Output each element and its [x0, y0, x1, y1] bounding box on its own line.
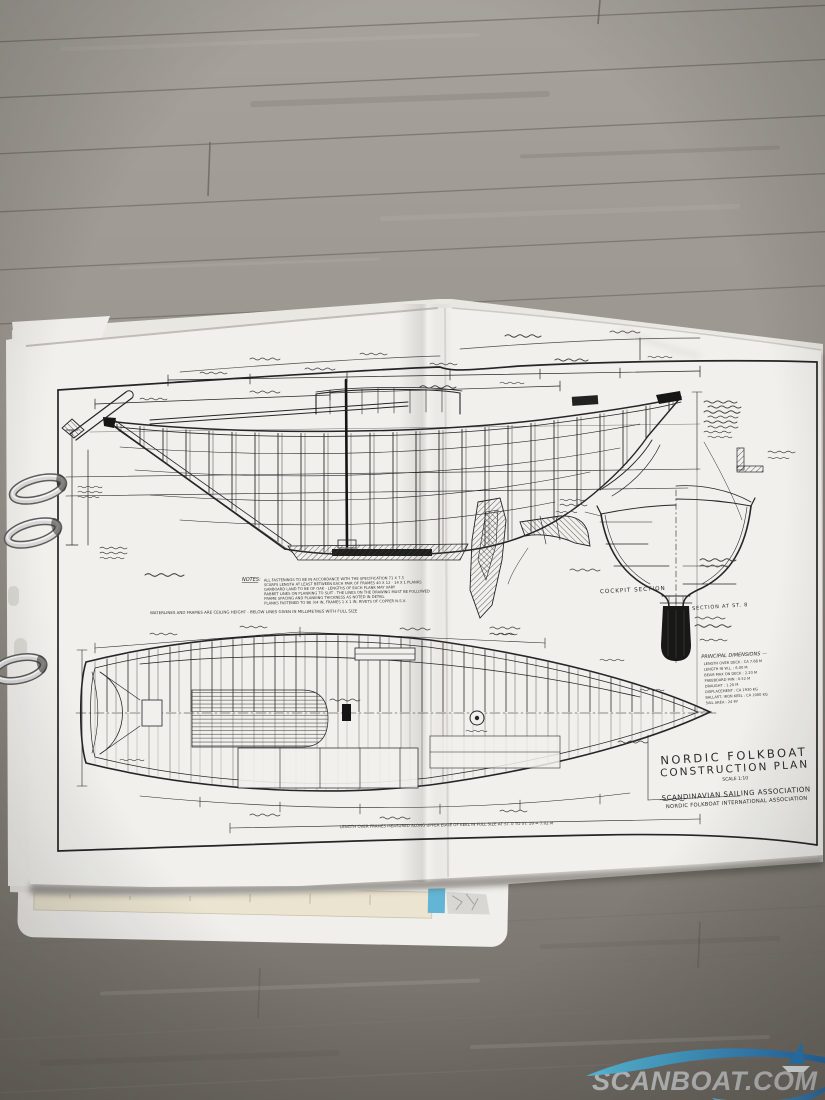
- photo-of-construction-plan: { "sheet": { "title_block": { "line1": "…: [0, 0, 825, 1100]
- notes-heading: NOTES:: [242, 577, 261, 583]
- blue-index-tab: [428, 888, 446, 913]
